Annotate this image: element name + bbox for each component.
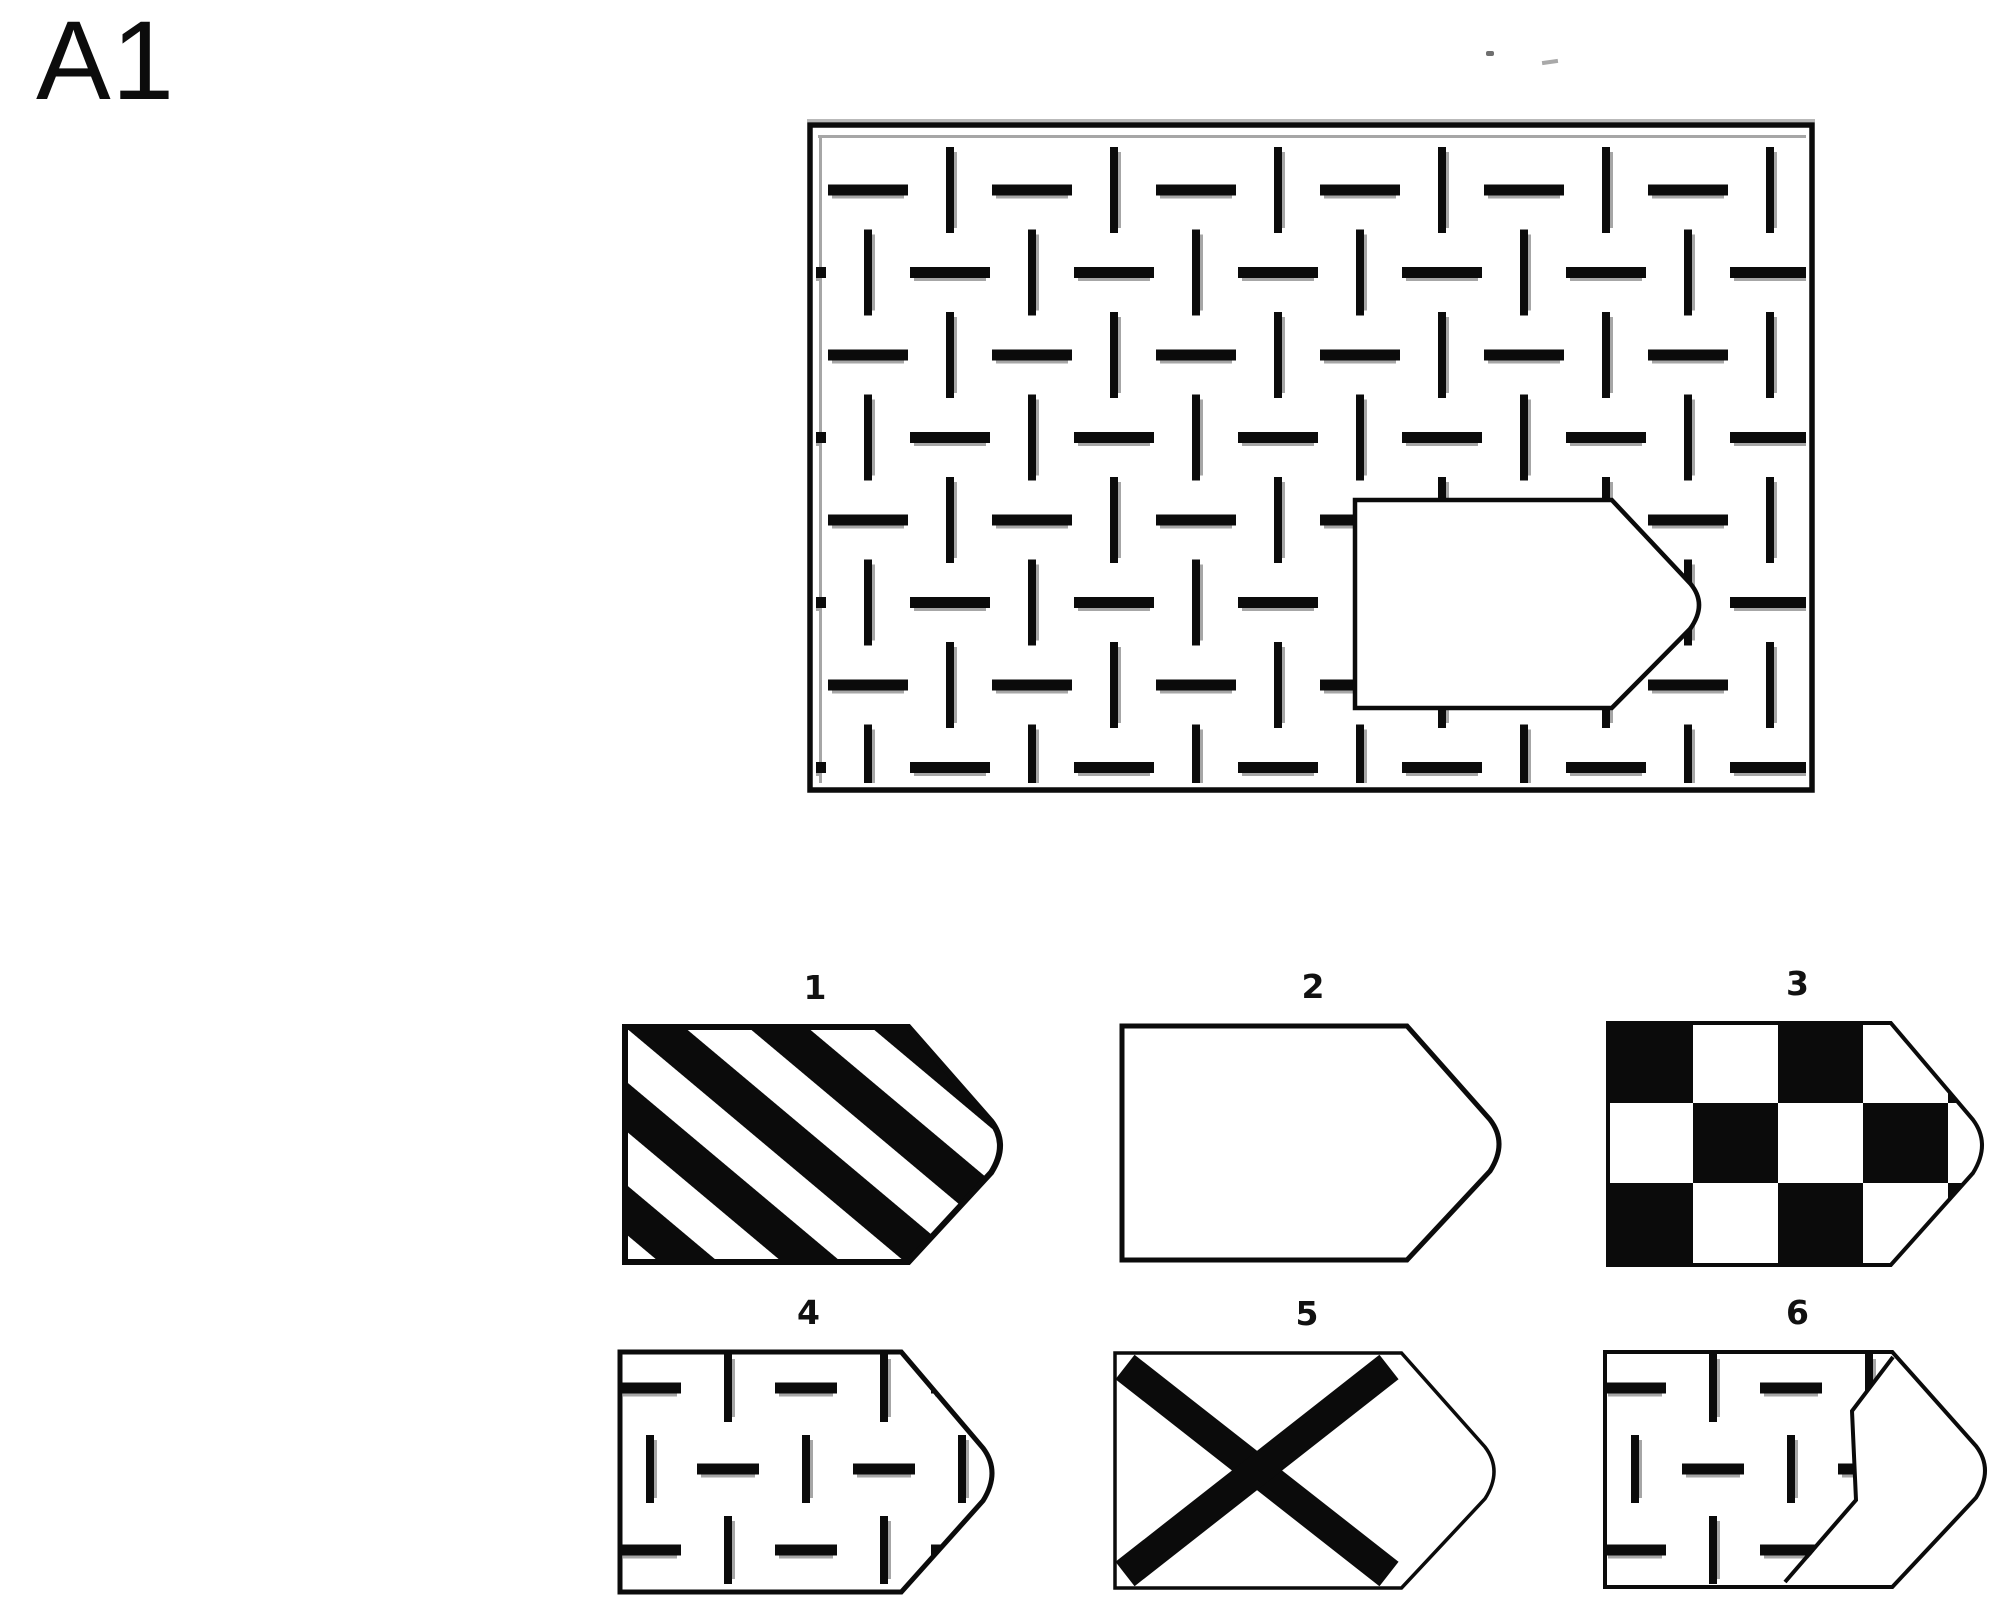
option-2-shape[interactable] <box>1111 1015 1513 1271</box>
option-number: 2 <box>1111 969 1515 1005</box>
option-3-shape[interactable] <box>1597 1012 1996 1276</box>
worksheet-page: A1 1 2 3 4 5 6 <box>0 0 2015 1624</box>
answer-option-5[interactable]: 5 <box>1104 1296 1510 1601</box>
option-number: 6 <box>1594 1295 2001 1331</box>
option-number: 1 <box>614 970 1016 1006</box>
option-number: 3 <box>1597 966 1998 1002</box>
option-6-shape[interactable] <box>1594 1341 1999 1598</box>
answer-option-1[interactable]: 1 <box>614 970 1016 1275</box>
answer-option-6[interactable]: 6 <box>1594 1295 2001 1600</box>
answer-option-3[interactable]: 3 <box>1597 966 1998 1278</box>
scan-speck <box>1542 59 1558 65</box>
stimulus-canvas <box>800 115 1825 805</box>
option-number: 5 <box>1104 1296 1510 1332</box>
scan-speck <box>1486 51 1494 56</box>
option-number: 4 <box>609 1295 1008 1331</box>
option-1-shape[interactable] <box>614 1016 1014 1273</box>
item-label: A1 <box>36 2 175 120</box>
answer-option-4[interactable]: 4 <box>609 1295 1008 1605</box>
stimulus-figure <box>800 115 1825 805</box>
option-4-shape[interactable] <box>609 1341 1006 1603</box>
answer-option-2[interactable]: 2 <box>1111 969 1515 1273</box>
option-5-shape[interactable] <box>1104 1342 1508 1599</box>
